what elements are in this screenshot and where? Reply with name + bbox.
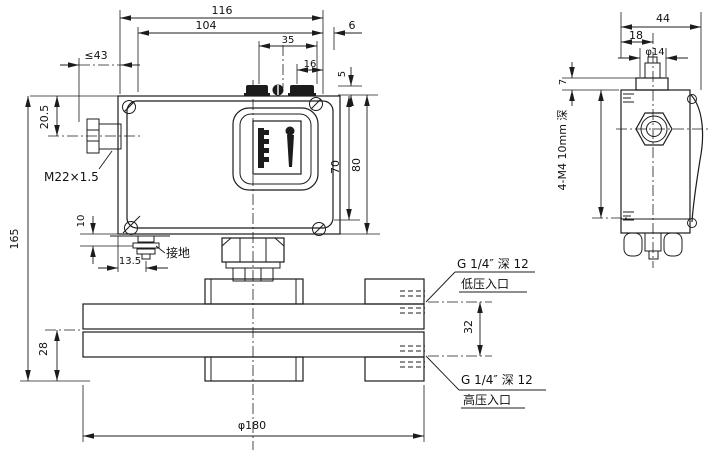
drawing-page: 116 104 6 35 16 5 ≤43 20.5 M22×1.5 165 1…: [0, 0, 723, 455]
corner-screw: [123, 98, 326, 236]
technical-drawing: 116 104 6 35 16 5 ≤43 20.5 M22×1.5 165 1…: [0, 0, 723, 455]
flange-assembly: [83, 279, 425, 381]
dim-flange-diameter: φ180: [238, 419, 266, 432]
scale-window: [233, 108, 318, 190]
gland-leader: [99, 151, 112, 169]
dim-terminal-height: 5: [337, 71, 348, 77]
label-high-pressure-thread: G 1/4″ 深 12: [461, 373, 533, 387]
dim-gland-hole-diameter: φ14: [645, 47, 664, 58]
dim-gland-length-max: ≤43: [84, 49, 107, 62]
label-cable-gland-thread: M22×1.5: [44, 170, 99, 184]
dim-overall-width: 116: [212, 4, 233, 17]
dim-gland-hole-offset: 18: [629, 29, 643, 42]
dim-ground-v-offset: 10: [76, 215, 87, 228]
dim-ground-h-offset: 13.5: [119, 256, 141, 267]
dim-cap-step: 7: [558, 79, 569, 85]
dim-flange-thickness: 28: [37, 342, 50, 356]
case-profile: [691, 95, 703, 222]
lower-flange-plate: [83, 332, 424, 357]
case-body: [127, 101, 333, 228]
upper-flange-plate: [83, 304, 424, 329]
dim-right-offset: 6: [349, 19, 356, 32]
dim-case-height: 80: [350, 158, 363, 172]
label-high-pressure-inlet: 高压入口: [463, 392, 511, 407]
dim-overall-height: 165: [8, 229, 21, 250]
dim-mounting-holes: 4-M4 10mm 深: [556, 110, 569, 191]
label-grounding: 接地: [166, 245, 190, 260]
dim-case-width: 104: [196, 19, 217, 32]
front-view: [48, 80, 425, 450]
cable-gland: [48, 119, 140, 153]
top-fitting: [636, 57, 668, 90]
extension-lines: [20, 10, 701, 442]
pointer: [286, 127, 295, 136]
side-view: [616, 33, 710, 268]
ground-leader: [156, 246, 165, 253]
low-pressure-port: [400, 291, 425, 313]
dim-port-spacing: 32: [462, 320, 475, 334]
label-low-pressure-inlet: 低压入口: [461, 277, 509, 291]
dim-window-height: 70: [329, 160, 342, 174]
dim-depth: 44: [656, 12, 670, 25]
low-port-leader: [426, 272, 455, 302]
dim-terminal-span-inner: 16: [304, 59, 317, 70]
dim-gland-center-offset: 20.5: [38, 105, 51, 130]
dim-terminal-span: 35: [282, 35, 295, 46]
scale-bar: [258, 128, 264, 168]
dimension-texts: 116 104 6 35 16 5 ≤43 20.5 M22×1.5 165 1…: [8, 4, 670, 432]
high-port-leader: [426, 356, 459, 390]
terminal-block: [244, 85, 316, 97]
label-low-pressure-thread: G 1/4″ 深 12: [457, 257, 529, 271]
